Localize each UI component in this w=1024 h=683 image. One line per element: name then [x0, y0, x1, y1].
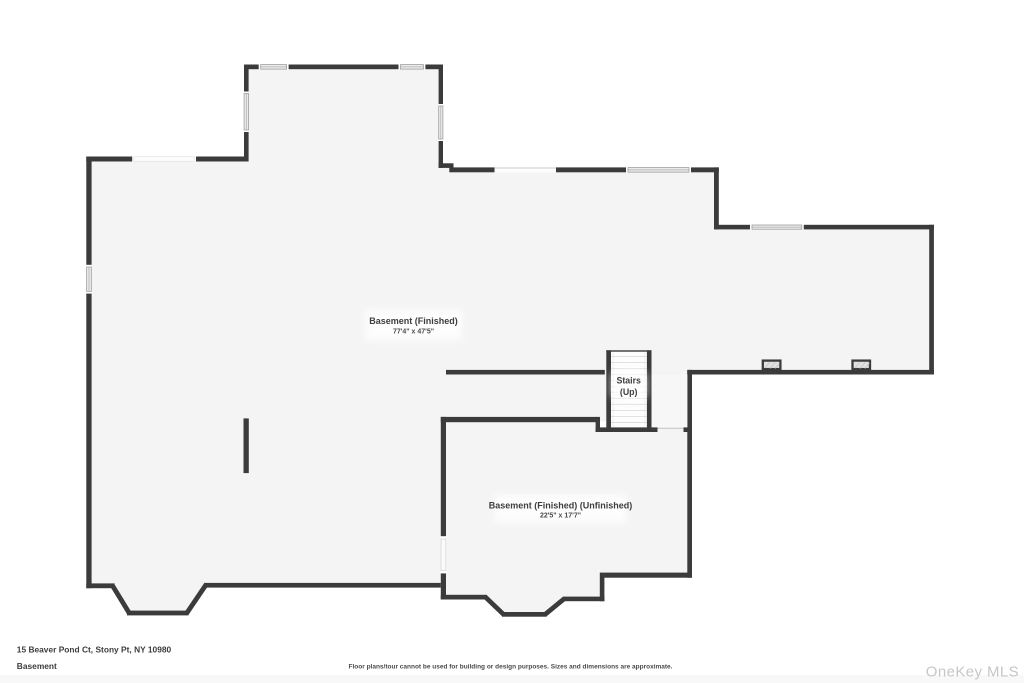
- svg-text:Basement (Finished): Basement (Finished): [369, 316, 458, 326]
- svg-text:Floor plans/tour cannot be use: Floor plans/tour cannot be used for buil…: [349, 663, 673, 670]
- svg-text:Stairs: Stairs: [616, 376, 641, 386]
- svg-text:77'4" x 47'5": 77'4" x 47'5": [393, 328, 434, 335]
- svg-text:Basement (Finished) (Unfinishe: Basement (Finished) (Unfinished): [489, 501, 633, 511]
- svg-text:15 Beaver Pond Ct, Stony Pt, N: 15 Beaver Pond Ct, Stony Pt, NY 10980: [17, 644, 172, 654]
- svg-text:Basement: Basement: [17, 661, 57, 671]
- svg-text:(Up): (Up): [620, 387, 638, 397]
- svg-text:22'5" x 17'7": 22'5" x 17'7": [540, 512, 581, 519]
- svg-text:OneKey MLS: OneKey MLS: [926, 664, 1019, 681]
